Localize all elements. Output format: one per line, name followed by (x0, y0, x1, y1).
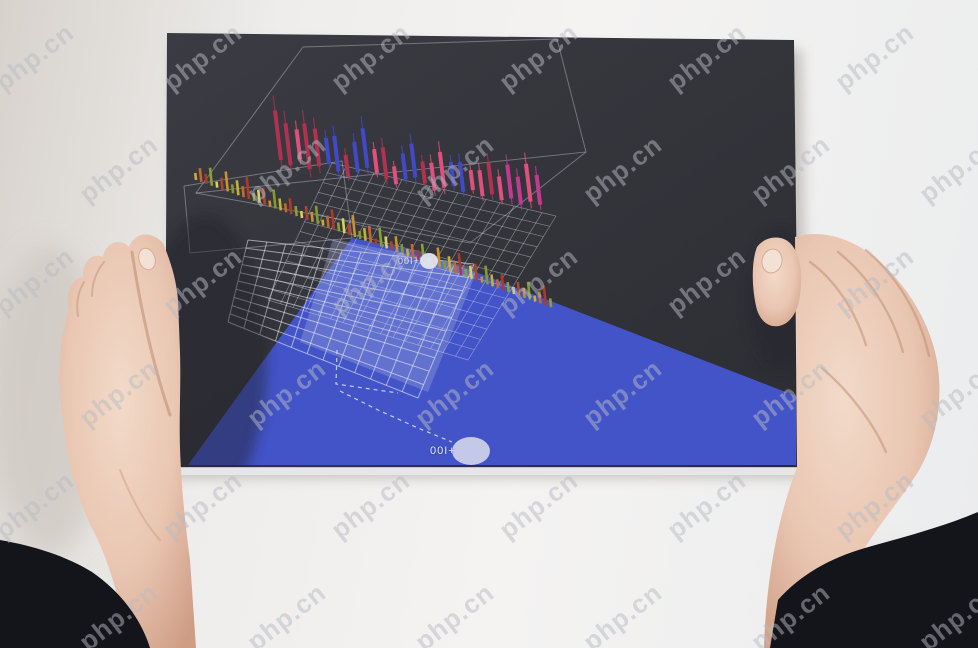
watermark-text: php.cn (73, 129, 163, 209)
watermark-text: php.cn (409, 577, 499, 648)
card-bottom-edge-highlight (165, 468, 799, 475)
watermark-text: php.cn (0, 17, 80, 97)
marker-dot (420, 253, 438, 269)
marker-label: 00I+ (398, 257, 420, 266)
watermark-text: php.cn (241, 577, 331, 648)
marker-dot (452, 437, 490, 465)
watermark-text: php.cn (913, 129, 978, 209)
marker-label: 00I+ (430, 446, 456, 457)
watermark-text: php.cn (577, 577, 667, 648)
photo-stage: php.cnphp.cnphp.cnphp.cnphp.cnphp.cnphp.… (0, 0, 978, 648)
photo-scene: php.cnphp.cnphp.cnphp.cnphp.cnphp.cnphp.… (0, 0, 978, 648)
watermark-text: php.cn (829, 17, 919, 97)
